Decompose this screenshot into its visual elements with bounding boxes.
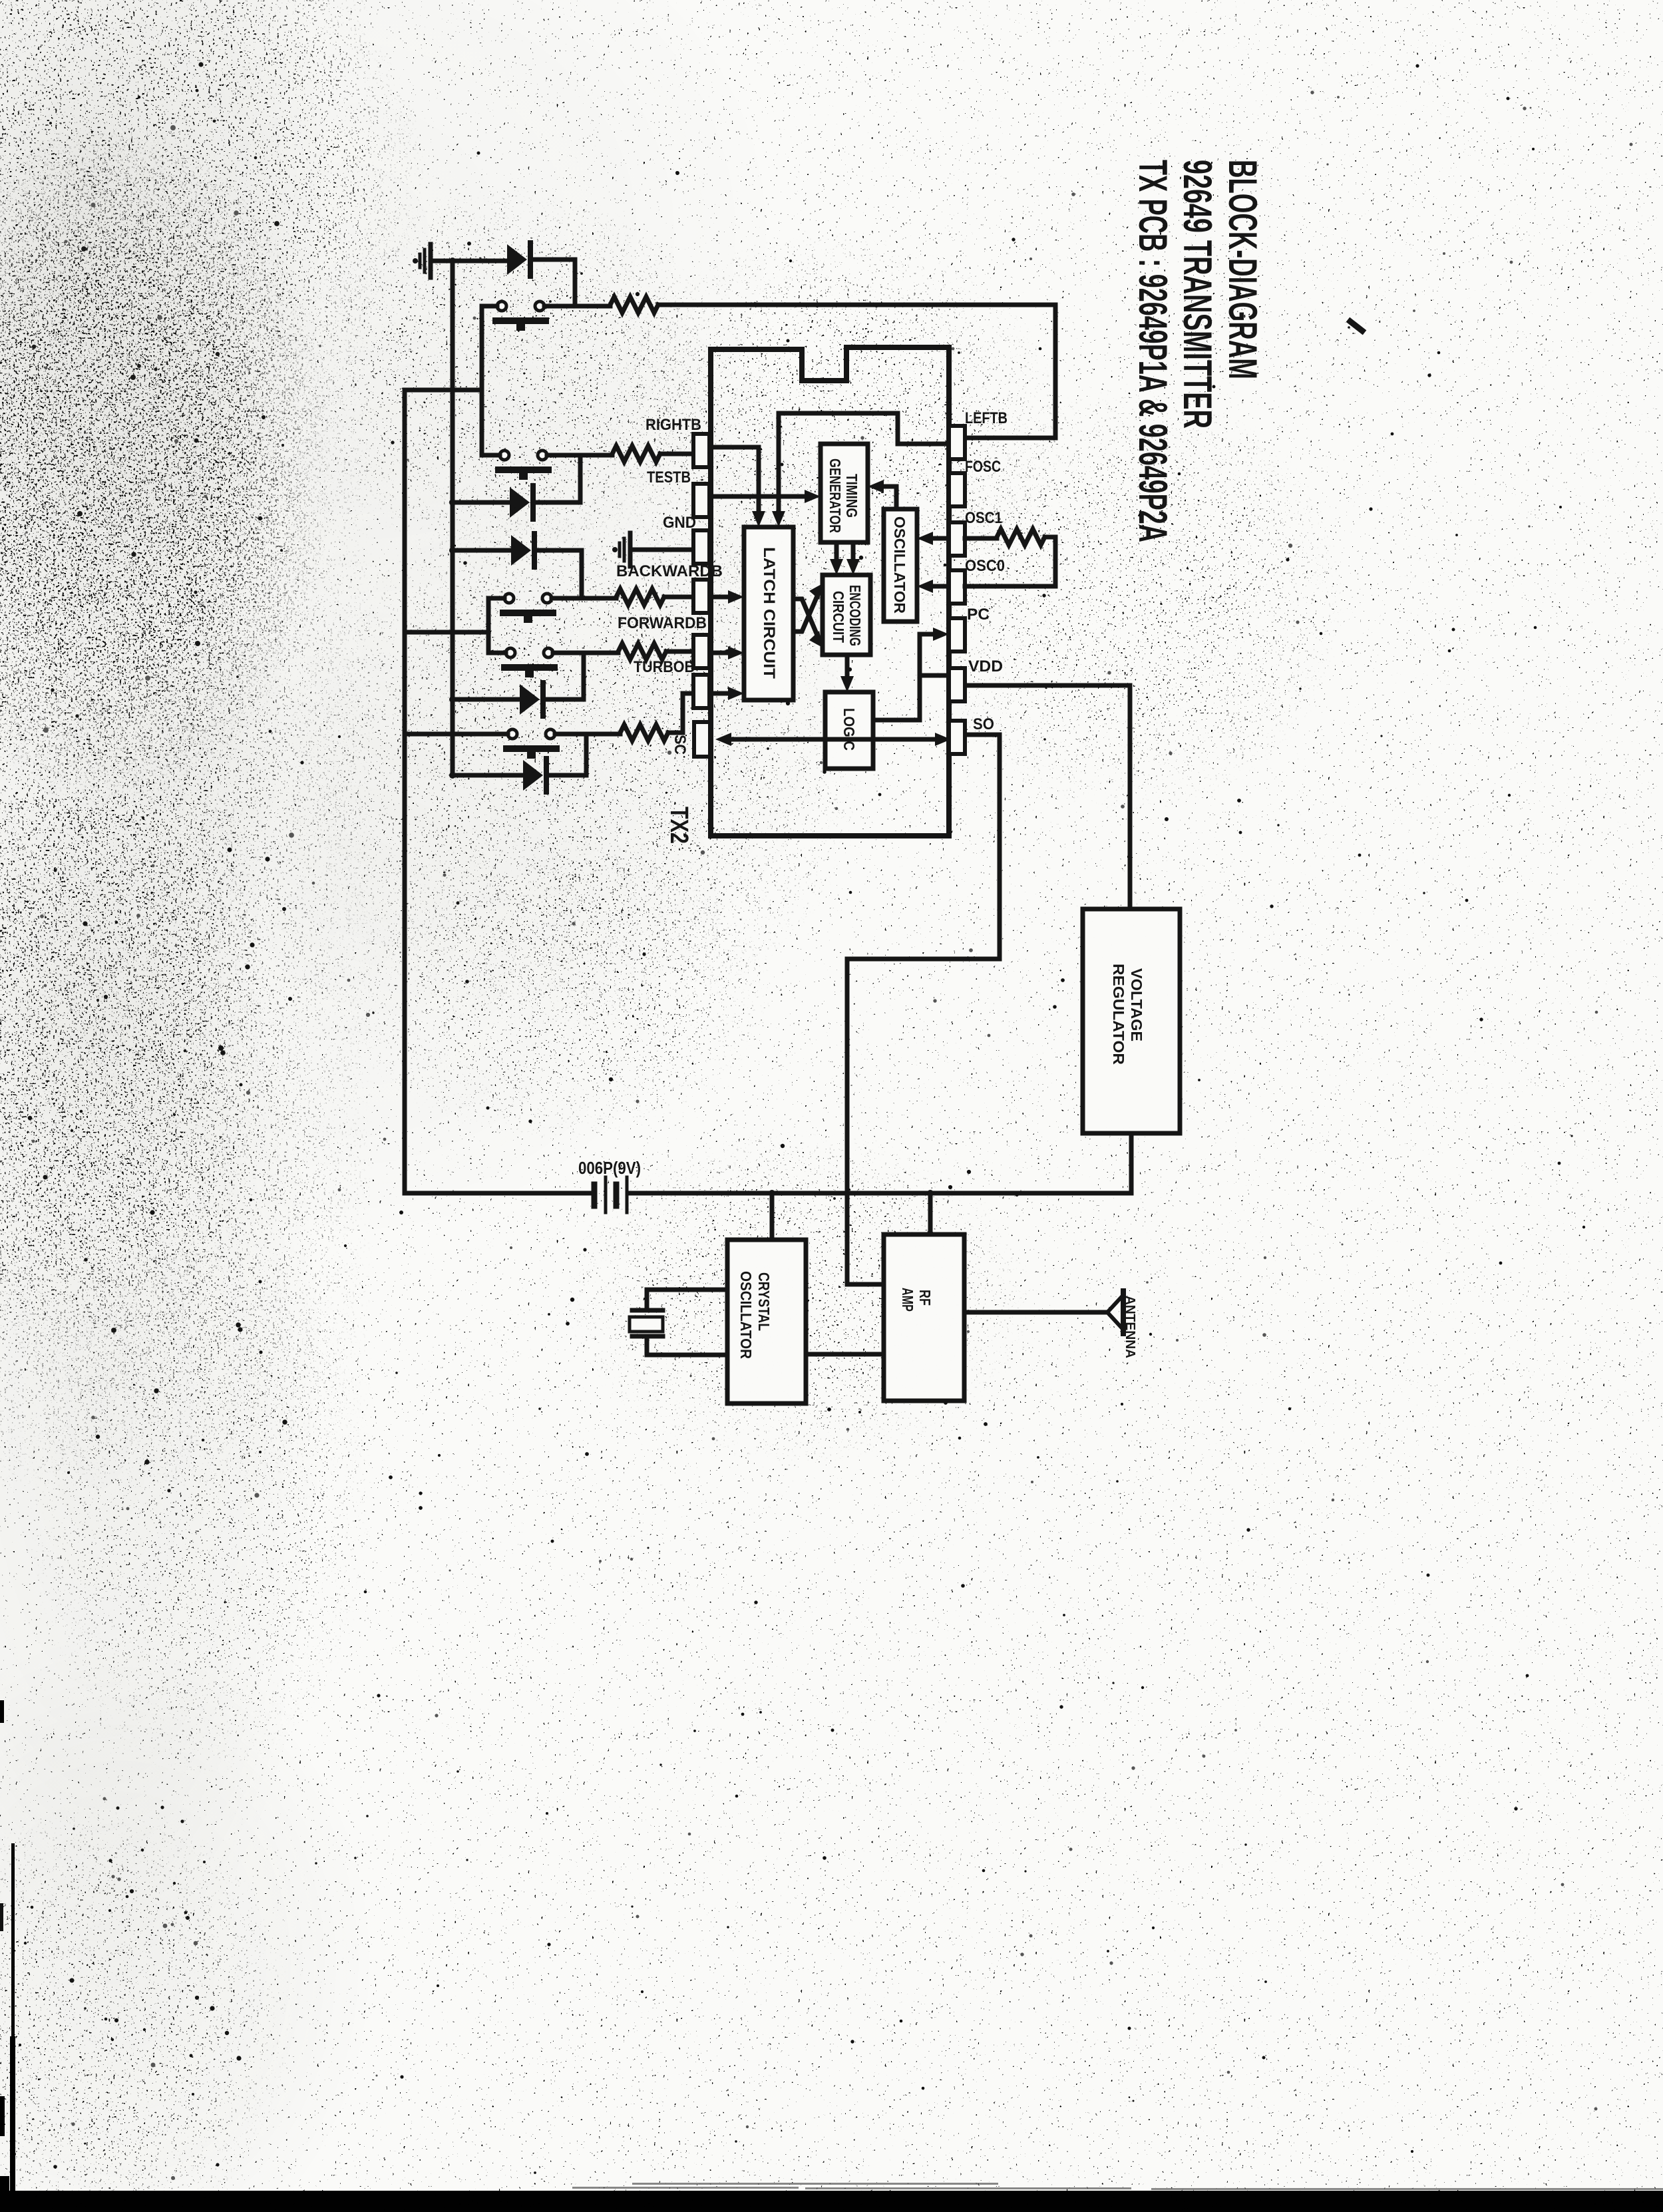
svg-text:ANTENNA: ANTENNA [1123,1296,1137,1358]
svg-text:TESTB: TESTB [647,468,691,486]
svg-text:TX2: TX2 [665,807,693,844]
svg-text:GENERATOR: GENERATOR [827,459,844,533]
svg-text:FORWARDB: FORWARDB [618,614,707,632]
svg-text:VOLTAGE: VOLTAGE [1128,968,1145,1041]
svg-text:FOSC: FOSC [965,458,1001,476]
svg-text:006P(9V): 006P(9V) [578,1158,641,1178]
svg-text:OSC1: OSC1 [965,509,1002,527]
svg-text:GND: GND [663,514,696,532]
svg-text:TIMING: TIMING [843,474,860,518]
svg-text:OSC0: OSC0 [965,557,1005,575]
svg-text:OSCILLATOR: OSCILLATOR [891,516,908,614]
svg-text:RF: RF [916,1290,934,1306]
svg-text:LEFTB: LEFTB [965,409,1008,427]
svg-text:AMP: AMP [899,1288,916,1312]
svg-text:LOGIC: LOGIC [840,708,858,751]
svg-text:TX PCB : 92649P1A & 92649P2A: TX PCB : 92649P1A & 92649P2A [1131,160,1175,542]
svg-text:LATCH CIRCUIT: LATCH CIRCUIT [760,547,778,679]
svg-text:OSCILLATOR: OSCILLATOR [737,1271,755,1359]
svg-text:PC: PC [967,606,990,624]
svg-text:TURBOB: TURBOB [634,658,695,676]
svg-text:REGULATOR: REGULATOR [1110,964,1127,1065]
svg-text:ENCODING: ENCODING [846,585,864,646]
svg-text:BLOCK-DIAGRAM: BLOCK-DIAGRAM [1220,160,1265,379]
svg-text:CRYSTAL: CRYSTAL [755,1272,773,1331]
svg-text:SC: SC [671,735,689,755]
svg-text:BACKWARDB: BACKWARDB [616,562,723,580]
svg-text:CIRCUIT: CIRCUIT [830,591,847,643]
svg-text:RIGHTB: RIGHTB [646,416,701,434]
svg-text:VDD: VDD [968,657,1003,675]
svg-text:92649 TRANSMITTER: 92649 TRANSMITTER [1175,160,1220,429]
svg-text:SO: SO [973,715,994,733]
